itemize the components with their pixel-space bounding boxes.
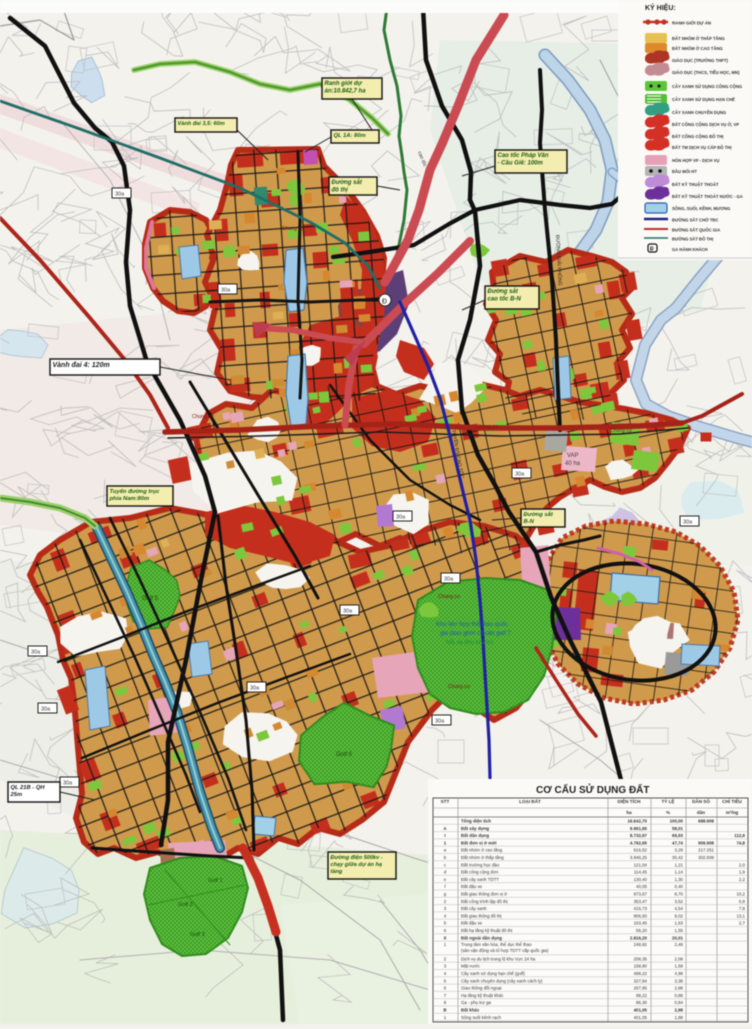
svg-text:I: I (444, 833, 445, 838)
svg-text:3,29: 3,29 (674, 848, 683, 853)
svg-text:114,45: 114,45 (634, 870, 648, 875)
svg-text:98,22: 98,22 (636, 993, 648, 998)
svg-text:1,88: 1,88 (674, 1015, 683, 1020)
svg-text:401,05: 401,05 (634, 1008, 648, 1013)
svg-text:GIÁO DỤC (TRƯỜNG THPT): GIÁO DỤC (TRƯỜNG THPT) (672, 58, 729, 63)
svg-text:353,47: 353,47 (634, 899, 648, 904)
svg-text:SÔNG, SUỐI, KÊNH, MƯƠNG: SÔNG, SUỐI, KÊNH, MƯƠNG (672, 206, 730, 211)
svg-text:Dịch vụ du lịch trong lộ khu V: Dịch vụ du lịch trong lộ khu Vực 24 ha (461, 956, 536, 961)
svg-text:100,00: 100,00 (670, 819, 684, 824)
svg-text:KÝ HIỆU:: KÝ HIỆU: (645, 3, 676, 12)
svg-text:Đất hạ tầng kỹ thuật đô thị: Đất hạ tầng kỹ thuật đô thị (461, 928, 512, 933)
svg-text:ĐẦU MỐI HT: ĐẦU MỐI HT (672, 169, 697, 174)
svg-text:CHỈ TIÊU: CHỈ TIÊU (722, 797, 742, 804)
svg-text:267,95: 267,95 (634, 986, 648, 991)
svg-text:16.642,70: 16.642,70 (627, 819, 647, 824)
svg-text:Cây xanh sử dụng hạn chế (golf: Cây xanh sử dụng hạn chế (golf) (461, 971, 525, 976)
svg-text:phía Nam:80m: phía Nam:80m (109, 496, 150, 502)
svg-text:58,01: 58,01 (672, 826, 684, 831)
svg-text:909.908: 909.908 (698, 840, 714, 845)
svg-text:CÂY XANH SỬ DỤNG CÔNG CỘNG: CÂY XANH SỬ DỤNG CÔNG CỘNG (672, 84, 742, 89)
svg-text:873,67: 873,67 (634, 892, 648, 897)
svg-text:30a: 30a (63, 781, 73, 787)
svg-text:đô thị: đô thị (332, 188, 349, 194)
svg-text:56,20: 56,20 (636, 928, 648, 933)
svg-text:B: B (443, 1008, 446, 1013)
svg-text:47,74: 47,74 (672, 840, 684, 845)
svg-text:25m: 25m (10, 792, 23, 798)
svg-text:Vành đai 4: 120m: Vành đai 4: 120m (53, 362, 110, 369)
svg-text:RANH GIỚI DỰ ÁN: RANH GIỚI DỰ ÁN (672, 21, 711, 26)
svg-text:2,2: 2,2 (739, 877, 746, 882)
svg-text:II: II (444, 935, 446, 940)
svg-text:Đ: Đ (382, 299, 387, 306)
svg-text:DÂN SỐ: DÂN SỐ (692, 798, 710, 804)
svg-text:2,7: 2,7 (739, 921, 746, 926)
svg-text:ĐẤT CÔNG CỘNG ĐÔ THỊ: ĐẤT CÔNG CỘNG ĐÔ THỊ (672, 134, 723, 139)
svg-text:74,8: 74,8 (736, 840, 745, 845)
svg-text:Cao tốc Pháp Vân: Cao tốc Pháp Vân (498, 152, 549, 159)
svg-text:Ranh giới dự: Ranh giới dự (325, 81, 363, 87)
svg-text:HỖN HỢP VP - DỊCH VỤ: HỖN HỢP VP - DỊCH VỤ (672, 158, 719, 163)
svg-text:2,98: 2,98 (674, 986, 683, 991)
svg-text:40 ha: 40 ha (565, 461, 581, 467)
svg-text:Mặt nước: Mặt nước (461, 964, 481, 969)
svg-text:Đất dân dụng: Đất dân dụng (461, 833, 489, 838)
svg-text:10,2: 10,2 (736, 892, 745, 897)
svg-text:Chung cư: Chung cư (438, 594, 461, 600)
svg-text:30a: 30a (250, 686, 260, 692)
svg-text:3,38: 3,38 (674, 978, 683, 983)
svg-text:Đ: Đ (650, 247, 654, 253)
svg-text:Golf 5: Golf 5 (142, 596, 159, 602)
svg-text:Giao thông đối ngoại: Giao thông đối ngoại (461, 986, 502, 991)
svg-text:Đất công cộng đơn: Đất công cộng đơn (461, 870, 499, 875)
svg-text:Hạ tầng kỹ thuật khác: Hạ tầng kỹ thuật khác (461, 993, 504, 998)
svg-text:248,82: 248,82 (634, 942, 648, 947)
svg-text:0,88: 0,88 (674, 993, 683, 998)
svg-text:án:10.842,7 ha: án:10.842,7 ha (325, 89, 367, 95)
svg-text:Tuyến đường trục: Tuyến đường trục (110, 488, 161, 495)
svg-text:tầng: tầng (331, 869, 343, 875)
svg-text:Đường điện 500kv -: Đường điện 500kv - (331, 855, 383, 861)
svg-text:616,52: 616,52 (634, 848, 648, 853)
svg-text:(sân vận động và tổ hợp TDTT c: (sân vận động và tổ hợp TDTT cấp quốc gi… (461, 948, 549, 953)
svg-text:30a: 30a (683, 520, 693, 526)
svg-text:5,8: 5,8 (739, 899, 746, 904)
svg-text:86,30: 86,30 (636, 1000, 648, 1005)
svg-text:2,0: 2,0 (739, 862, 746, 867)
svg-text:2,48: 2,48 (674, 942, 683, 947)
svg-text:498,22: 498,22 (634, 971, 648, 976)
svg-text:Đất công trình lập đô thị: Đất công trình lập đô thị (461, 899, 508, 904)
svg-text:Đất giao thông đơn vị ở: Đất giao thông đơn vị ở (461, 892, 507, 897)
svg-text:ĐẤT KỸ THUẬT THOÁT: ĐẤT KỸ THUẬT THOÁT (672, 182, 719, 187)
svg-text:158,80: 158,80 (634, 964, 648, 969)
svg-text:ĐẤT TM DỊCH VỤ CẤP ĐÔ THỊ: ĐẤT TM DỊCH VỤ CẤP ĐÔ THỊ (672, 145, 731, 150)
svg-text:TỶ LỆ: TỶ LỆ (661, 797, 674, 804)
svg-text:LOẠI ĐẤT: LOẠI ĐẤT (519, 798, 541, 804)
svg-text:Vành đai 3,5: 60m: Vành đai 3,5: 60m (178, 121, 225, 127)
svg-text:Chung cư: Chung cư (448, 684, 471, 690)
svg-text:7,8: 7,8 (739, 906, 746, 911)
svg-text:30a: 30a (221, 288, 231, 294)
svg-text:3.846,25: 3.846,25 (630, 855, 648, 860)
svg-text:401,05: 401,05 (634, 1015, 648, 1020)
svg-text:8.732,97: 8.732,97 (630, 833, 648, 838)
svg-text:30a: 30a (444, 577, 454, 583)
svg-text:3,52: 3,52 (674, 899, 683, 904)
svg-text:69,93: 69,93 (672, 833, 684, 838)
svg-text:Đất nhóm ở cao tầng: Đất nhóm ở cao tầng (461, 848, 503, 853)
svg-text:ĐẤT NHÓM Ở THẤP TẦNG: ĐẤT NHÓM Ở THẤP TẦNG (672, 36, 725, 41)
svg-text:Sông suối kênh rạch: Sông suối kênh rạch (461, 1015, 502, 1020)
svg-text:ĐẤT CÔNG CỘNG DỊCH VỤ Ở, VP: ĐẤT CÔNG CỘNG DỊCH VỤ Ở, VP (672, 122, 739, 127)
svg-text:1,63: 1,63 (674, 921, 683, 926)
svg-text:688.908: 688.908 (698, 819, 714, 824)
svg-text:- Cầu Giẽ: 100m: - Cầu Giẽ: 100m (498, 161, 544, 167)
svg-text:1,21: 1,21 (674, 862, 683, 867)
svg-text:ĐƯỜNG SẮT ĐÔ THỊ: ĐƯỜNG SẮT ĐÔ THỊ (672, 237, 713, 242)
svg-text:hố) và khu lưu trú: hố) và khu lưu trú (446, 640, 493, 646)
svg-text:Đất đơn vị ở mới: Đất đơn vị ở mới (461, 840, 496, 845)
svg-text:Golf 1: Golf 1 (208, 878, 223, 884)
svg-text:Đất cây xanh: Đất cây xanh (461, 906, 487, 911)
svg-text:CÂY XANH SỬ DỤNG HẠN CHẾ: CÂY XANH SỬ DỤNG HẠN CHẾ (672, 97, 735, 102)
svg-text:8,70: 8,70 (674, 892, 683, 897)
svg-text:VAP: VAP (567, 453, 579, 459)
svg-text:GIÁO DỤC (THCS, TIỂU HỌC, MN): GIÁO DỤC (THCS, TIỂU HỌC, MN) (672, 70, 740, 75)
svg-text:0,40: 0,40 (674, 884, 683, 889)
svg-text:30a: 30a (396, 515, 406, 521)
svg-text:ĐƯỜNG SẮT QUỐC GIA: ĐƯỜNG SẮT QUỐC GIA (672, 228, 720, 233)
svg-text:0,84: 0,84 (674, 1000, 683, 1005)
svg-text:163,45: 163,45 (634, 921, 648, 926)
svg-text:Đất xây dựng: Đất xây dựng (461, 826, 489, 831)
svg-text:GA HÀNH KHÁCH: GA HÀNH KHÁCH (672, 247, 708, 252)
svg-text:1,55: 1,55 (674, 928, 683, 933)
svg-text:806,50: 806,50 (634, 913, 648, 918)
svg-text:1,9: 1,9 (739, 870, 746, 875)
svg-text:QL 21B - QH: QL 21B - QH (11, 785, 46, 791)
svg-text:4,98: 4,98 (674, 971, 683, 976)
svg-text:327,84: 327,84 (634, 978, 648, 983)
svg-text:Đất ngoài dân dụng: Đất ngoài dân dụng (461, 935, 502, 940)
svg-text:30a: 30a (41, 707, 51, 713)
svg-text:208,35: 208,35 (634, 956, 648, 961)
svg-text:30,42: 30,42 (672, 855, 684, 860)
svg-text:ha: ha (626, 810, 632, 815)
svg-text:Golf 6: Golf 6 (336, 752, 353, 758)
svg-text:STT: STT (441, 799, 450, 804)
svg-text:8,02: 8,02 (674, 913, 683, 918)
svg-text:1,30: 1,30 (674, 877, 683, 882)
svg-text:dân: dân (697, 810, 705, 815)
svg-text:4,54: 4,54 (674, 906, 683, 911)
svg-text:9.661,65: 9.661,65 (630, 826, 648, 831)
svg-text:Chung cư: Chung cư (282, 226, 305, 232)
svg-text:m²/ng: m²/ng (726, 810, 739, 815)
svg-text:ĐẤT NHÓM Ở CAO TẦNG: ĐẤT NHÓM Ở CAO TẦNG (672, 46, 723, 51)
svg-text:1,14: 1,14 (674, 870, 683, 875)
svg-text:ĐƯỜNG SẮT CHỜ TĐC: ĐƯỜNG SẮT CHỜ TĐC (672, 218, 718, 223)
svg-text:Đường sắt: Đường sắt (488, 288, 519, 295)
svg-text:Đất cây xanh TDTT: Đất cây xanh TDTT (461, 877, 499, 882)
svg-text:Trung tâm văn hóa, thể dục thể: Trung tâm văn hóa, thể dục thể thao (461, 942, 532, 947)
svg-text:217.251: 217.251 (698, 848, 714, 853)
svg-text:2,08: 2,08 (674, 956, 683, 961)
svg-text:%: % (666, 810, 670, 815)
svg-text:415,73: 415,73 (634, 906, 648, 911)
svg-text:Đất nhóm ở thấp tầng: Đất nhóm ở thấp tầng (461, 855, 504, 860)
svg-text:Đất giao thông đô thị: Đất giao thông đô thị (461, 913, 502, 918)
svg-text:cao tốc B-N: cao tốc B-N (488, 296, 522, 303)
svg-text:40,05: 40,05 (636, 884, 648, 889)
svg-text:Chung cư: Chung cư (192, 414, 215, 420)
svg-text:Chung cư: Chung cư (476, 424, 499, 430)
svg-text:30a: 30a (515, 472, 525, 478)
svg-text:Đường sắt: Đường sắt (524, 511, 554, 518)
svg-text:121,04: 121,04 (634, 862, 648, 867)
svg-text:Tổng diện tích: Tổng diện tích (461, 819, 491, 824)
svg-text:112,6: 112,6 (734, 833, 745, 838)
svg-text:30a: 30a (343, 609, 353, 615)
svg-text:30a: 30a (115, 192, 125, 198)
svg-text:QL 1A: 80m: QL 1A: 80m (334, 133, 366, 139)
svg-text:4.792,65: 4.792,65 (630, 840, 648, 845)
svg-text:Golf 3: Golf 3 (190, 932, 205, 938)
svg-text:Đất đậu xe: Đất đậu xe (461, 921, 483, 926)
svg-text:Đất trường học đào: Đất trường học đào (461, 862, 500, 867)
svg-text:Chung cư: Chung cư (610, 428, 633, 434)
svg-text:Khu liên hợp thể thao quốc: Khu liên hợp thể thao quốc (436, 621, 508, 628)
svg-text:Đất đậu xe: Đất đậu xe (461, 884, 483, 889)
svg-text:Golf 2: Golf 2 (178, 902, 193, 908)
svg-text:1,58: 1,58 (674, 964, 683, 969)
svg-text:2.816,20: 2.816,20 (630, 935, 648, 940)
svg-text:302.608: 302.608 (698, 855, 714, 860)
svg-text:Đất khác: Đất khác (461, 1008, 480, 1013)
svg-text:DIỆN TÍCH: DIỆN TÍCH (618, 797, 642, 804)
svg-text:CƠ CẤU SỬ DỤNG ĐẤT: CƠ CẤU SỬ DỤNG ĐẤT (536, 783, 650, 796)
svg-text:gia (bao gồm cả sân golf 7: gia (bao gồm cả sân golf 7 (440, 631, 511, 637)
svg-text:130,40: 130,40 (634, 877, 648, 882)
svg-text:2,98: 2,98 (674, 1008, 683, 1013)
svg-text:20,01: 20,01 (672, 935, 684, 940)
svg-text:B-N: B-N (524, 519, 535, 525)
svg-text:ĐẤT KỸ THUẬT THOÁT NƯỚC - GA: ĐẤT KỸ THUẬT THOÁT NƯỚC - GA (672, 194, 743, 199)
svg-text:CÂY XANH CHUYÊN DỤNG: CÂY XANH CHUYÊN DỤNG (672, 110, 726, 115)
svg-text:Ga - phụ trợ ga: Ga - phụ trợ ga (461, 1000, 492, 1005)
svg-text:30a: 30a (435, 719, 445, 725)
svg-text:chạy giữa dự án hạ: chạy giữa dự án hạ (331, 862, 383, 868)
svg-text:Đường sắt: Đường sắt (332, 179, 363, 186)
svg-text:Cây xanh chuyên dụng (cây xanh: Cây xanh chuyên dụng (cây xanh cách ly) (461, 978, 543, 983)
svg-text:13,1: 13,1 (736, 913, 745, 918)
svg-text:30a: 30a (31, 650, 41, 656)
